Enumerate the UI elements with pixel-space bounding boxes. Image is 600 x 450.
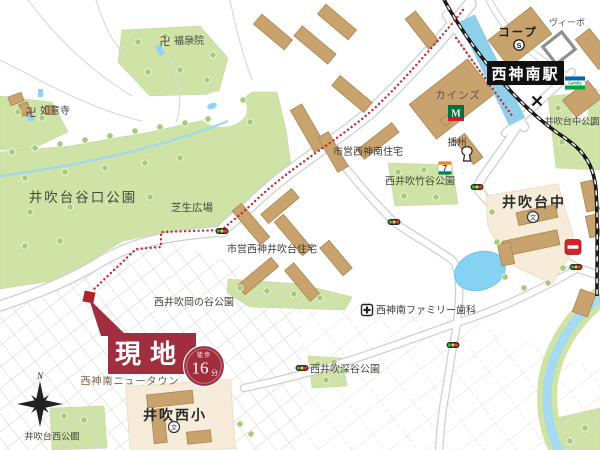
- temple-icon-nyoiji: 卍: [26, 106, 37, 119]
- walk-time-badge: 徒歩 16 分: [184, 346, 225, 387]
- walk-unit: 分: [211, 368, 218, 377]
- temple-icon-fukusenin: 卍: [160, 35, 171, 48]
- label-takedani-park: 西井吹竹谷公園: [385, 175, 455, 188]
- site-location-square: [82, 290, 95, 303]
- label-taniguchi-park: 井吹台谷口公園: [29, 190, 138, 205]
- label-okanotani-park: 西井吹岡の谷公園: [154, 296, 234, 309]
- school-icon-elementary: 文: [169, 422, 180, 433]
- school-glyph: 文: [171, 422, 178, 431]
- seven-glyph: 7: [443, 164, 448, 173]
- label-ibukidai-junior-high: 井吹台中: [502, 194, 566, 210]
- label-shiei-seishin-minami-jutaku: 市営西神南住宅: [333, 145, 403, 158]
- site-label: 現地: [115, 340, 185, 369]
- red-store-icon: [565, 240, 581, 255]
- label-coop: コープ: [498, 25, 538, 39]
- coop-s-glyph: S: [516, 41, 521, 50]
- m-logo-glyph: M: [451, 109, 461, 120]
- label-nyoiji: 如意寺: [40, 104, 70, 117]
- walk-minutes: 16: [192, 359, 209, 378]
- map-canvas: 7 Family M S 文 文 卍 卍 N: [0, 0, 600, 450]
- label-shibafu-hiroba: 芝生広場: [171, 201, 213, 214]
- label-ibukidai-naka-park: 井吹台中公園: [544, 116, 599, 127]
- route-map: 7 Family M S 文 文 卍 卍 N: [0, 0, 600, 450]
- station-label: 西神南駅: [487, 61, 564, 85]
- label-banshu: 播州: [447, 137, 466, 149]
- m-store-icon: M: [448, 105, 464, 121]
- familymart-icon: Family: [565, 77, 585, 90]
- station-name: 西神南駅: [491, 65, 559, 83]
- label-fukatani-park: 西井吹深谷公園: [310, 363, 380, 376]
- label-family-dental: 西神南ファミリー歯科: [376, 304, 476, 317]
- label-vivo: ヴィーボ: [549, 17, 585, 28]
- school-glyph: 文: [530, 212, 537, 221]
- compass-n-label: N: [36, 371, 44, 381]
- dental-clinic-icon: [362, 305, 373, 316]
- banshu-bank-icon: [462, 147, 472, 161]
- familymart-label: Family: [568, 81, 582, 86]
- label-ibukidai-nishi-park: 井吹台西公園: [24, 431, 79, 442]
- seven-eleven-icon: 7: [439, 162, 452, 175]
- label-seishin-minami-newtown: 西神南ニュータウン: [81, 375, 180, 388]
- label-ibuki-nishi-elementary: 井吹西小: [143, 407, 207, 423]
- school-icon-junior-high: 文: [528, 212, 539, 223]
- coop-s-icon: S: [514, 40, 524, 50]
- label-cainz: カインズ: [435, 89, 481, 102]
- label-shiei-seishin-ibukidai-jutaku: 市営西神井吹台住宅: [227, 243, 317, 256]
- label-fukusenin: 福泉院: [174, 34, 204, 47]
